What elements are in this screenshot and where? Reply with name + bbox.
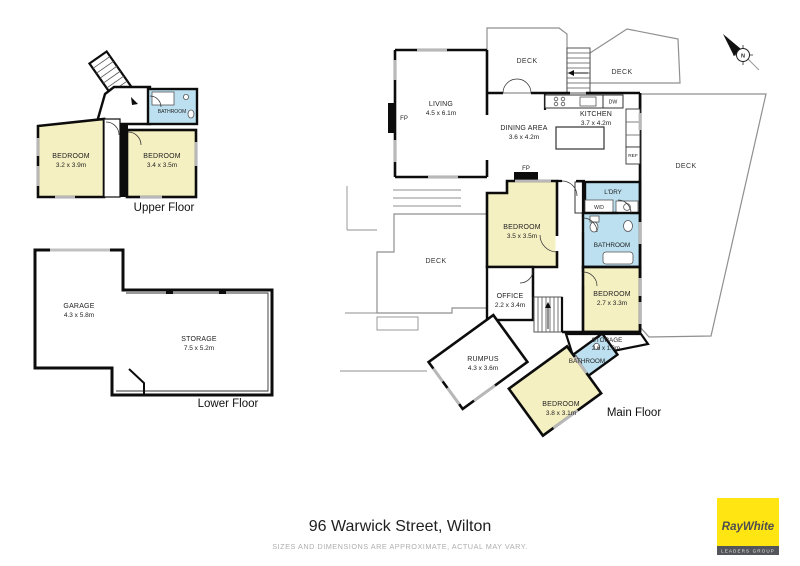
label-deck-left: DECK [425, 258, 446, 265]
deck-top-right [590, 29, 680, 83]
label-deck-top: DECK [516, 58, 537, 65]
deck-right [641, 94, 766, 337]
room-dims-upper-bedroom-right: 3.4 x 3.5m [147, 162, 177, 169]
room-label-office: OFFICE [497, 293, 524, 300]
disclaimer-text: SIZES AND DIMENSIONS ARE APPROXIMATE, AC… [272, 542, 527, 551]
logo-brand-name: RayWhite [722, 521, 775, 533]
room-label-rumpus: RUMPUS [467, 356, 499, 363]
lower-floor-label: Lower Floor [198, 398, 259, 410]
room-dims-upper-bedroom-left: 3.2 x 3.9m [56, 162, 86, 169]
kitchen-fittings [545, 95, 640, 164]
room-label-storage-main: STORAGE [592, 337, 623, 344]
fireplace-living [388, 103, 395, 133]
bathtub [603, 252, 633, 264]
room-label-bedroom-c: BEDROOM [542, 401, 580, 408]
floorplan-canvas: BATHROOM BEDROOM 3.2 x 3.9m BEDROOM 3.4 … [0, 0, 800, 566]
label-fp-living: FP [400, 116, 408, 122]
room-label-bedroom-a: BEDROOM [503, 224, 541, 231]
room-dims-bedroom-c: 3.8 x 3.1m [546, 410, 576, 417]
room-label-bedroom-b: BEDROOM [593, 291, 631, 298]
main-floor-label: Main Floor [607, 407, 661, 419]
main-floor-plan: LIVING 4.5 x 6.1m FP DECK DECK DECK DECK… [340, 28, 766, 436]
label-deck-top-right: DECK [611, 69, 632, 76]
wall-post [166, 289, 173, 294]
room-dims-living: 4.5 x 6.1m [426, 110, 456, 117]
label-fridge: REF [628, 153, 638, 159]
basin [624, 221, 633, 232]
room-dims-office: 2.2 x 3.4m [495, 302, 525, 309]
room-dims-bedroom-a: 3.5 x 3.5m [507, 233, 537, 240]
room-label-lower-storage: STORAGE [181, 336, 217, 343]
label-washer-dryer: W/D [594, 205, 604, 211]
room-label-upper-bathroom: BATHROOM [158, 109, 187, 115]
lower-floor-outline [35, 250, 272, 395]
room-label-kitchen: KITCHEN [580, 111, 612, 118]
room-label-dining: DINING AREA [500, 125, 547, 132]
garden-step [377, 317, 418, 330]
room-dims-storage-main: 2.6 x 1.6m [592, 346, 620, 352]
pantry [626, 109, 640, 147]
upper-floor-plan: BATHROOM BEDROOM 3.2 x 3.9m BEDROOM 3.4 … [38, 51, 197, 214]
room-dims-garage: 4.3 x 5.8m [64, 312, 94, 319]
property-address: 96 Warwick Street, Wilton [309, 518, 492, 535]
deck-stairs [567, 48, 590, 93]
label-deck-right: DECK [675, 163, 696, 170]
label-dishwasher: DW [609, 100, 618, 106]
room-dims-lower-storage: 7.5 x 5.2m [184, 345, 214, 352]
sink [183, 94, 188, 99]
room-dims-rumpus: 4.3 x 3.6m [468, 365, 498, 372]
logo-tagline: LEADERS GROUP [721, 549, 775, 554]
room-dims-bedroom-b: 2.7 x 3.3m [597, 300, 627, 307]
room-dims-dining: 3.6 x 4.2m [509, 134, 539, 141]
north-compass: N [723, 34, 759, 70]
wall-post [219, 289, 226, 294]
raywhite-logo: RayWhite LEADERS GROUP [717, 498, 779, 555]
room-label-living: LIVING [429, 101, 453, 108]
upper-corridor [104, 119, 120, 197]
room-dims-kitchen: 3.7 x 4.2m [581, 120, 611, 127]
kitchen-island [556, 127, 604, 149]
main-staircase [534, 297, 562, 332]
room-label-laundry: L'DRY [604, 189, 622, 196]
lower-floor-plan: GARAGE 4.3 x 5.8m STORAGE 7.5 x 5.2m Low… [35, 250, 272, 410]
toilet [188, 110, 194, 118]
door-gap [556, 236, 559, 251]
bathtub [152, 92, 174, 105]
label-fp-dining: FP [522, 166, 530, 172]
room-label-bathroom-main: BATHROOM [594, 242, 630, 249]
room-label-bathroom-rear: BATHROOM [569, 358, 605, 365]
kitchen-sink [580, 97, 596, 106]
room-label-upper-bedroom-left: BEDROOM [52, 153, 90, 160]
compass-north-label: N [741, 54, 745, 60]
room-label-upper-bedroom-right: BEDROOM [143, 153, 181, 160]
upper-floor-label: Upper Floor [134, 202, 195, 214]
room-label-garage: GARAGE [63, 303, 94, 310]
